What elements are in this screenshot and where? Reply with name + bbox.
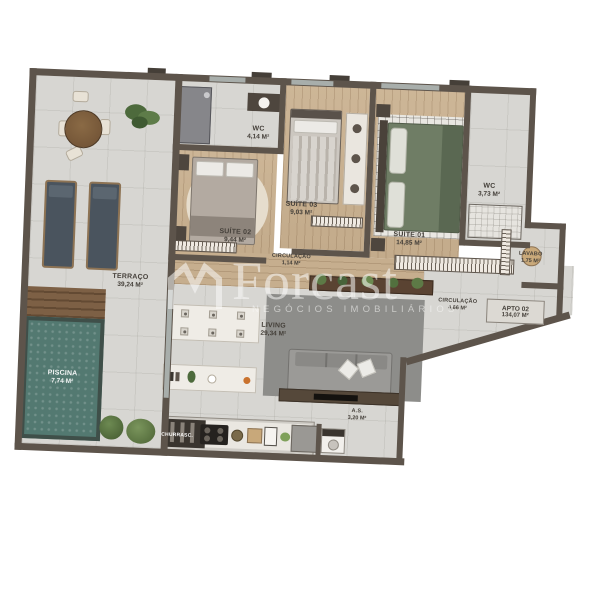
room-area: 39,24 M² [112, 281, 148, 291]
label-area-servico: A.S. 3,20 M² [347, 408, 366, 423]
badge-area: 134,07 M² [487, 311, 543, 319]
bed-pillow [196, 161, 225, 177]
bed-pillow [387, 181, 406, 228]
place-setting [209, 310, 217, 318]
laundry-cabinet [291, 425, 319, 453]
apartment-badge: APTO 02 134,07 M² [486, 299, 545, 325]
dining-table [171, 304, 260, 344]
label-suite02: SUÍTE 02 9,44 M² [219, 227, 252, 246]
island-fruit [243, 377, 250, 384]
lounger-pillow [49, 185, 73, 198]
label-lavabo: LAVABO 1,75 M² [518, 251, 542, 266]
tv [314, 394, 358, 402]
cutting-board [247, 428, 263, 444]
room-area: 1,75 M² [518, 258, 542, 266]
wc-suites-shower [177, 86, 212, 144]
place-setting [208, 328, 216, 336]
terrace-chair [72, 91, 88, 103]
burner [204, 427, 210, 433]
bed-headboard [291, 110, 341, 120]
room-area: 4,66 M² [438, 305, 477, 314]
bed-duvet [291, 136, 338, 202]
island-bowl [207, 374, 216, 383]
burner [204, 435, 210, 441]
room-area: 3,73 M² [478, 190, 500, 199]
room-area: 9,44 M² [219, 236, 251, 246]
room-area: 14,85 M² [393, 239, 425, 249]
room-area: 3,20 M² [347, 415, 366, 423]
kitchen-sink [264, 427, 278, 447]
place-setting [237, 312, 245, 320]
suite03-bed [287, 108, 343, 204]
washing-machine [321, 428, 346, 454]
label-wc-suites: WC 4,14 M² [247, 124, 270, 142]
label-suite01: SUÍTE 01 14,85 M² [393, 230, 426, 249]
room-area: 29,34 M² [260, 330, 286, 339]
vanity-sink [258, 97, 269, 108]
suite03-cabinet [343, 113, 369, 206]
cabinet-knob [352, 124, 361, 133]
burner [217, 436, 223, 442]
sofa [287, 349, 393, 395]
cabinet-knob [350, 184, 359, 193]
suite01-bed [384, 122, 464, 233]
place-setting [181, 309, 189, 317]
suite01-nightstand [376, 104, 391, 118]
sun-lounger [86, 181, 122, 270]
label-circulacao-social: CIRCULAÇÃO 4,66 M² [438, 297, 478, 313]
washer-panel [322, 429, 344, 437]
apartment-plan: CHURRASC. [14, 62, 585, 478]
lounger-pillow [93, 187, 117, 200]
cabinet-knob [351, 154, 360, 163]
kitchen-island [162, 364, 257, 394]
bed-pillow [226, 162, 255, 178]
room-area: 7,74 M² [47, 377, 77, 387]
label-wc-suite01: WC 3,73 M² [478, 181, 501, 199]
burner [217, 428, 223, 434]
duct-shaft [500, 229, 512, 275]
sun-lounger [42, 180, 78, 269]
label-piscina: PISCINA 7,74 M² [47, 368, 77, 387]
place-setting [180, 327, 188, 335]
room-area: 9,03 M² [285, 209, 317, 219]
label-circulacao-intima: CIRCULAÇÃO 1,14 M² [271, 253, 311, 269]
suite01-nightstand [371, 238, 386, 252]
room-area: 1,14 M² [271, 260, 310, 269]
wc-suites-vanity [247, 93, 281, 112]
room-area: 4,14 M² [247, 133, 269, 142]
suite03-bench [311, 215, 363, 228]
label-terraco: TERRAÇO 39,24 M² [112, 272, 149, 291]
pool-deck [25, 286, 106, 319]
floorplan-render: CHURRASC. [0, 0, 600, 600]
bed-pillow [293, 120, 337, 135]
label-suite03: SUÍTE 03 9,03 M² [285, 200, 318, 219]
island-plant [187, 371, 195, 383]
place-setting [236, 329, 244, 337]
stove [200, 424, 229, 445]
island-bottle [175, 372, 179, 381]
label-living: LIVING 29,34 M² [260, 321, 286, 340]
bed-pillow [389, 128, 408, 175]
shower-drain [204, 92, 210, 98]
washer-door [328, 439, 339, 450]
wc-suite01-shower [467, 204, 522, 240]
